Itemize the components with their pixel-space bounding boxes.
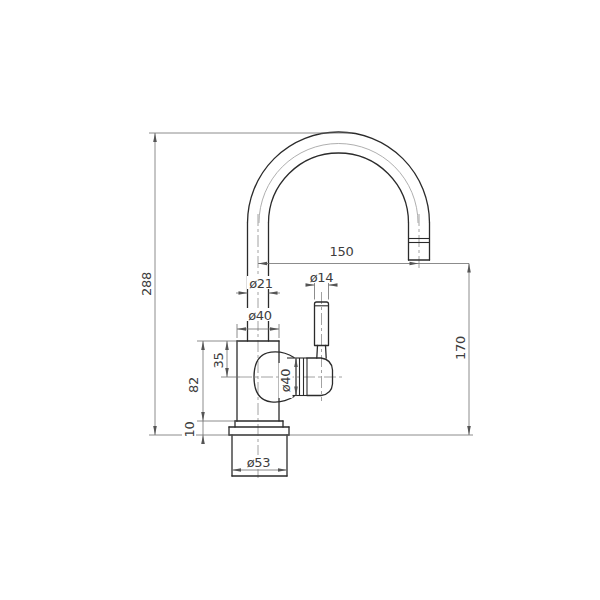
arrowhead xyxy=(239,291,248,295)
label-body-height: 82 xyxy=(186,377,201,393)
arrowhead xyxy=(278,468,287,472)
arrowhead xyxy=(410,262,419,266)
technical-drawing-page: 150 288 170 ø21 ø40 ø14 35 82 10 ø53 ø40 xyxy=(0,0,600,600)
arrowhead xyxy=(269,291,278,295)
arrowhead xyxy=(201,412,205,421)
arrowhead xyxy=(467,264,471,273)
spout-outer-arc xyxy=(248,132,430,223)
label-spout-tube-diameter: ø21 xyxy=(249,276,273,291)
faucet-technical-drawing: 150 288 170 ø21 ø40 ø14 35 82 10 ø53 ø40 xyxy=(0,0,600,600)
label-valve-diameter: ø40 xyxy=(278,369,293,393)
arrowhead xyxy=(225,341,229,350)
arrowhead xyxy=(153,133,157,142)
handle-neck-right xyxy=(326,346,327,359)
label-handle-diameter: ø14 xyxy=(310,270,334,285)
spout-middle-arc xyxy=(259,143,418,223)
label-overall-height: 288 xyxy=(139,272,154,296)
arrowhead xyxy=(201,341,205,350)
arrowhead xyxy=(294,387,298,396)
arrowhead xyxy=(258,262,267,266)
handle-neck-left xyxy=(317,346,318,359)
label-flange-height: 10 xyxy=(182,422,197,438)
label-outlet-height: 170 xyxy=(453,336,468,360)
arrowhead xyxy=(237,327,246,331)
arrowhead xyxy=(153,426,157,435)
label-base-diameter: ø53 xyxy=(247,455,271,470)
faucet-outline xyxy=(229,132,430,476)
label-riser-base-diameter: ø40 xyxy=(248,308,272,323)
dimension-lines xyxy=(149,133,473,472)
arrowhead xyxy=(232,468,241,472)
spout-inner-arc xyxy=(269,153,409,223)
arrowhead xyxy=(294,358,298,367)
arrowhead xyxy=(467,426,471,435)
arrowhead xyxy=(270,327,279,331)
label-spout-reach: 150 xyxy=(330,244,354,259)
dimension-labels: 150 288 170 ø21 ø40 ø14 35 82 10 ø53 ø40 xyxy=(139,244,468,470)
arrowhead xyxy=(201,435,205,444)
label-valve-offset: 35 xyxy=(211,353,226,369)
